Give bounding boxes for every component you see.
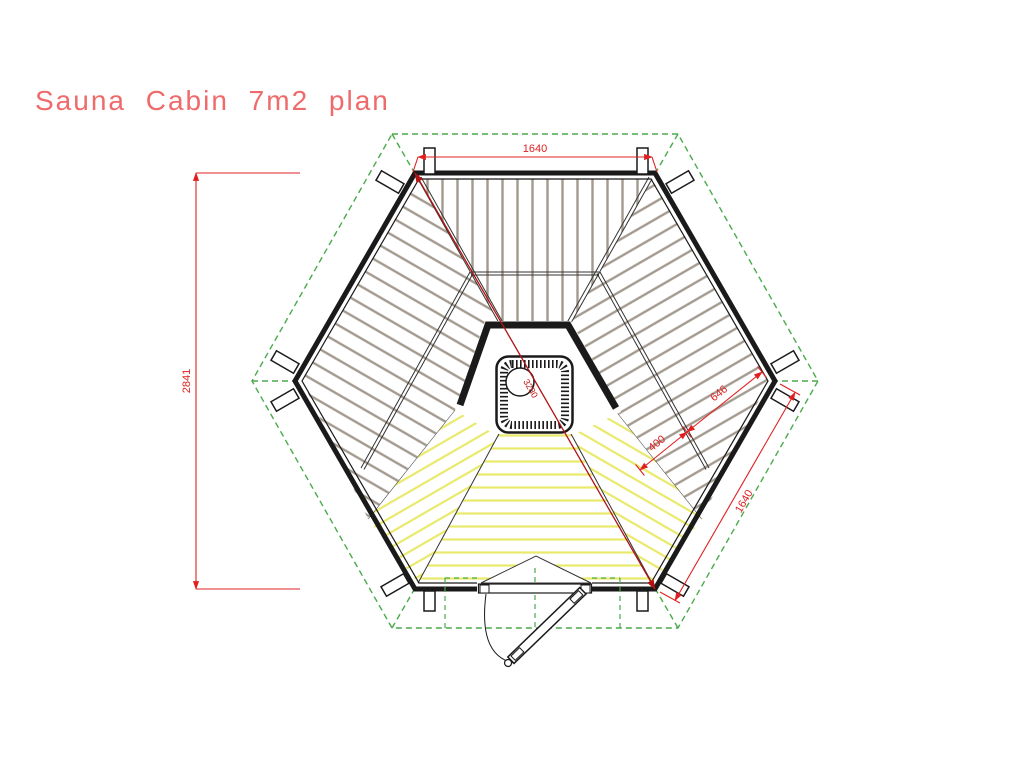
post-lower-left-wall (381, 574, 409, 597)
post-left-vertex-upper (271, 351, 299, 374)
post-upper-right-wall (666, 171, 694, 194)
blueprint-canvas: 1640 2841 3280 646 400 1640 Sauna Cabin … (0, 0, 1024, 768)
dim-label-left-height: 2841 (181, 369, 193, 393)
drawing-title: Sauna Cabin 7m2 plan (35, 85, 390, 116)
post-right-vertex-upper (771, 351, 799, 374)
post-bottom-right (637, 591, 648, 611)
post-lower-right-wall (661, 574, 689, 597)
post-left-vertex-lower (271, 389, 299, 412)
post-bottom-left (424, 591, 435, 611)
dim-label-wall-side: 1640 (733, 488, 756, 515)
post-upper-left-wall (376, 171, 404, 194)
dim-label-top-width: 1640 (523, 143, 547, 155)
post-top-left (424, 148, 435, 174)
post-top-right (637, 148, 648, 174)
door-leaf (502, 588, 586, 669)
sauna-plan-drawing: 1640 2841 3280 646 400 1640 Sauna Cabin … (0, 0, 1024, 768)
dimension-top-width (413, 157, 657, 172)
door-jamb-left (480, 585, 489, 593)
